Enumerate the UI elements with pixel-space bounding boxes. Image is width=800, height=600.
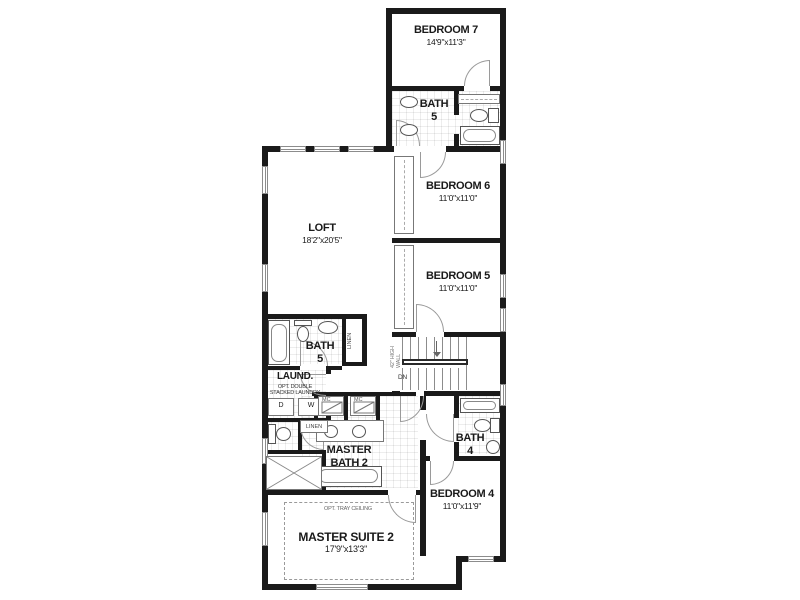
room-label-bath5-mid: BATH 5: [296, 340, 344, 366]
shelf: [458, 94, 500, 104]
room-label-bedroom6: BEDROOM 6 11'0"x11'0": [408, 180, 508, 203]
wall: [262, 490, 388, 495]
room-name: LOFT: [272, 222, 372, 235]
room-number: 5: [296, 353, 344, 366]
room-label-laundry: LAUND.: [264, 371, 326, 383]
bathtub-fixture: [460, 126, 500, 145]
room-name: BATH: [414, 98, 454, 111]
room-name2: BATH 2: [308, 457, 390, 470]
window: [500, 384, 506, 406]
linen-closet-label: LINEN: [347, 322, 361, 360]
opt-tray-ceiling-label: OPT. TRAY CEILING: [284, 506, 412, 512]
room-name: MASTER SUITE 2: [280, 530, 412, 544]
room-label-bedroom7: BEDROOM 7 14'9"x11'3": [390, 24, 502, 47]
closet-rod: [404, 160, 405, 230]
door-arc-bedroom7: [464, 60, 490, 86]
linen-small-label: LINEN: [301, 424, 327, 430]
toilet-bowl: [470, 109, 488, 122]
wall: [262, 366, 300, 370]
toilet-bowl: [276, 427, 291, 441]
room-label-loft: LOFT 18'2"x20'5": [272, 222, 372, 245]
bathtub-fixture: [460, 398, 500, 413]
sink-fixture: [486, 440, 500, 454]
toilet-tank: [488, 108, 499, 123]
wall: [262, 314, 366, 319]
stair-rail: [402, 359, 468, 365]
bathtub-fixture: [268, 320, 290, 365]
sink-fixture: [352, 425, 366, 438]
room-name: BEDROOM 5: [408, 270, 508, 283]
toilet-bowl: [474, 419, 491, 432]
wall: [392, 238, 506, 243]
wall: [424, 391, 506, 396]
window: [280, 146, 306, 152]
cabinet-left-label: MC: [322, 397, 331, 403]
window: [468, 556, 494, 562]
door-leaf: [400, 396, 401, 422]
door-leaf: [430, 461, 431, 485]
toilet-tank: [268, 424, 276, 444]
window: [500, 308, 506, 332]
room-number: 5: [414, 111, 454, 124]
door-leaf: [489, 60, 490, 86]
room-dims: 11'0"x11'0": [408, 283, 508, 293]
room-dims: 11'0"x11'0": [408, 193, 508, 203]
room-dims: 18'2"x20'5": [272, 235, 372, 245]
closet-rod: [404, 249, 405, 325]
cabinet-right: MC: [350, 396, 376, 416]
wall: [326, 366, 331, 374]
door-arc-bedroom5: [416, 304, 444, 332]
sink-fixture: [400, 124, 418, 136]
door-arc-master-bath: [400, 396, 424, 422]
linen-cabinet: LINEN: [300, 420, 328, 433]
window: [262, 166, 268, 194]
room-name: BATH: [296, 340, 344, 353]
bathtub-basin: [463, 129, 496, 142]
room-label-bedroom5: BEDROOM 5 11'0"x11'0": [408, 270, 508, 293]
window: [500, 140, 506, 164]
window: [316, 584, 368, 590]
door-arc-bedroom4: [430, 461, 454, 485]
room-number: 4: [452, 445, 488, 458]
stair-rail-label: 42" HIGH WALL: [390, 334, 402, 368]
stairs-down-label: DN: [398, 374, 418, 381]
window: [262, 264, 268, 292]
floor-plan: DN 42" HIGH WALL LINEN D W OPT. DOUBLE S…: [0, 0, 800, 600]
room-label-bath4: BATH 4: [452, 432, 488, 458]
stair-arrow-head: [433, 352, 441, 357]
room-name: LAUND.: [264, 371, 326, 383]
room-name: BATH: [452, 432, 488, 445]
door-leaf: [420, 152, 421, 178]
wall: [342, 362, 367, 366]
room-label-master-suite2: MASTER SUITE 2 17'9"x13'3": [280, 530, 412, 555]
cabinet-right-label: MC: [354, 397, 363, 403]
bathtub-basin: [463, 401, 496, 410]
door-arc-bedroom6: [420, 152, 446, 178]
dryer-label: D: [268, 402, 294, 409]
wall: [490, 86, 506, 91]
door-leaf: [416, 304, 417, 332]
room-dims: 11'0"x11'9": [416, 501, 508, 511]
door-leaf: [396, 120, 397, 146]
cabinet-left: MC: [318, 396, 344, 416]
sink-fixture: [318, 321, 338, 334]
wall: [446, 146, 506, 152]
room-name: BEDROOM 7: [390, 24, 502, 37]
window: [262, 512, 268, 546]
wall: [386, 8, 506, 14]
room-label-bedroom4: BEDROOM 4 11'0"x11'9": [416, 488, 508, 511]
shelf-line: [461, 99, 497, 100]
window: [314, 146, 340, 152]
door-arc-bath4: [426, 414, 454, 442]
toilet-tank: [490, 418, 500, 433]
room-dims: 14'9"x11'3": [390, 37, 502, 47]
bathtub-basin: [319, 469, 378, 483]
wall: [362, 314, 367, 366]
room-label-bath5-upper: BATH 5: [414, 98, 454, 124]
room-dims: 17'9"x13'3": [280, 544, 412, 555]
wall: [454, 396, 459, 418]
opt-laundry-line2: STACKED LAUNDRY: [264, 390, 326, 396]
room-name: BEDROOM 4: [416, 488, 508, 501]
room-label-master-bath2: MASTER BATH 2: [308, 444, 390, 470]
room-name: MASTER: [308, 444, 390, 457]
room-name: BEDROOM 6: [408, 180, 508, 193]
window: [348, 146, 374, 152]
bathtub-basin: [271, 324, 287, 362]
